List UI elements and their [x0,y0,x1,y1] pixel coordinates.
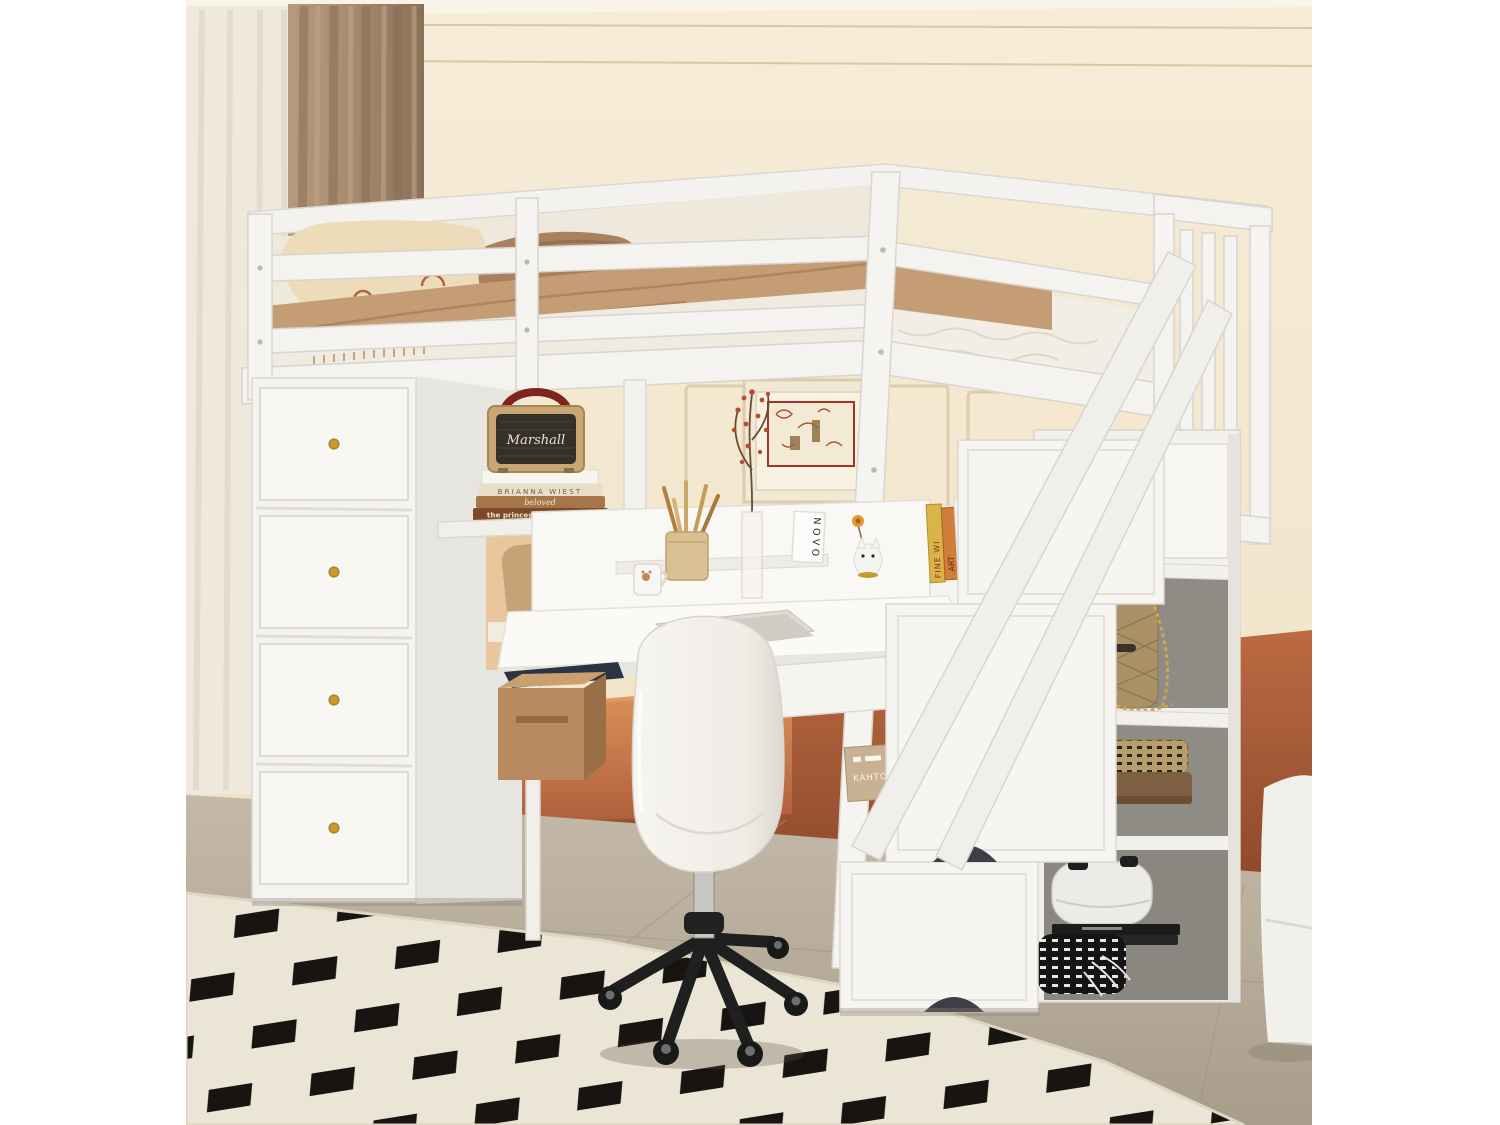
drawer-knob [329,695,339,705]
bw-textile [1038,934,1130,996]
drawer-knob [329,567,339,577]
stair-shadow [840,1008,1040,1016]
hat-box [1052,856,1152,924]
chair-lift-collar [684,912,724,934]
under-desk-storage-box [498,662,624,780]
drawer-knob [329,823,339,833]
bedroom-product-photo: BRIANNA WIEST beloved the princess saves… [186,0,1312,1125]
post-left [248,214,272,400]
post-mid [516,198,538,390]
novo-sign-text: NOVO [809,517,822,560]
tower-shadow [252,898,522,906]
shelf-book-b-text: ART [947,556,957,572]
stair-box-bottom [840,862,1038,1012]
book-spine-2-text: beloved [524,498,556,507]
drawer-tower [252,376,522,906]
drawer-knob [329,439,339,449]
chair-shadow [600,1039,804,1069]
unit-side-edge [1228,434,1240,1002]
mug [634,564,666,595]
chair-shell [632,616,784,872]
book-spine-1-text: BRIANNA WIEST [498,488,583,496]
slat-panel-right-post [1250,226,1270,544]
speaker-brand-text: Marshall [506,433,565,448]
page-canvas: BRIANNA WIEST beloved the princess saves… [0,0,1500,1125]
novo-sign: NOVO [792,511,826,563]
